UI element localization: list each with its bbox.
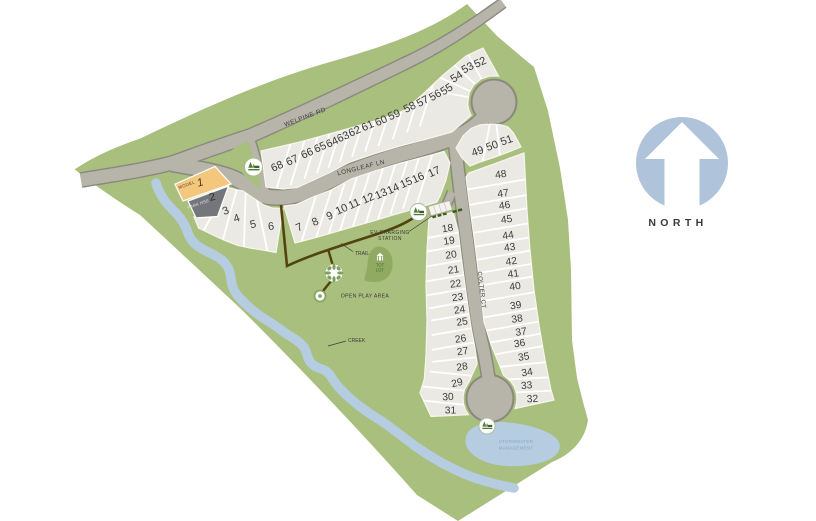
svg-text:23: 23: [451, 292, 464, 305]
svg-text:41: 41: [507, 268, 520, 281]
svg-text:30: 30: [442, 392, 454, 404]
svg-text:21: 21: [447, 264, 460, 277]
svg-text:35: 35: [517, 351, 530, 364]
svg-text:34: 34: [521, 367, 534, 380]
svg-text:24: 24: [453, 304, 466, 317]
svg-text:43: 43: [503, 242, 516, 255]
svg-text:22: 22: [449, 278, 462, 291]
svg-text:MANAGEMENT: MANAGEMENT: [499, 446, 533, 451]
svg-text:18: 18: [441, 223, 454, 236]
svg-text:40: 40: [509, 281, 522, 294]
svg-text:33: 33: [521, 380, 534, 392]
svg-text:47: 47: [497, 188, 510, 201]
svg-text:44: 44: [502, 230, 515, 243]
svg-text:25: 25: [456, 316, 469, 329]
svg-text:26: 26: [454, 333, 467, 346]
svg-text:NORTH: NORTH: [648, 217, 707, 229]
svg-text:38: 38: [511, 313, 524, 326]
svg-text:19: 19: [443, 235, 456, 248]
svg-text:6: 6: [267, 221, 274, 234]
svg-text:CREEK: CREEK: [348, 338, 366, 344]
svg-text:31: 31: [445, 406, 457, 417]
svg-text:36: 36: [513, 338, 526, 351]
svg-text:28: 28: [456, 361, 469, 374]
svg-text:27: 27: [456, 346, 469, 359]
svg-text:37: 37: [515, 326, 528, 339]
svg-text:32: 32: [526, 394, 538, 406]
svg-text:STORMWATER: STORMWATER: [499, 439, 533, 444]
svg-text:48: 48: [495, 169, 508, 182]
svg-text:20: 20: [445, 249, 458, 262]
svg-text:42: 42: [505, 256, 518, 269]
svg-text:TRAIL: TRAIL: [355, 251, 369, 257]
svg-text:OPEN PLAY AREA: OPEN PLAY AREA: [341, 294, 390, 300]
svg-text:39: 39: [509, 300, 522, 313]
svg-text:45: 45: [500, 214, 513, 227]
svg-text:STATION: STATION: [378, 236, 402, 242]
svg-text:46: 46: [498, 200, 511, 213]
svg-text:LOT: LOT: [376, 268, 385, 273]
